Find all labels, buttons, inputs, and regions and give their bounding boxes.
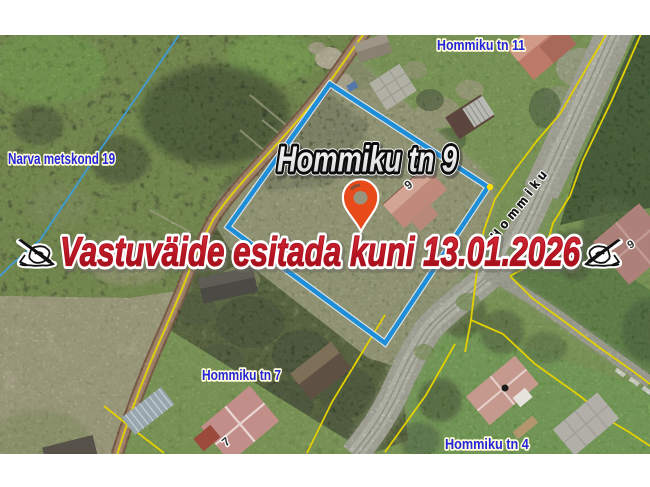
svg-text:Hommiku tn 7: Hommiku tn 7: [202, 367, 281, 383]
svg-text:Hommiku tn 11: Hommiku tn 11: [437, 37, 526, 53]
svg-text:Hommiku tn 9: Hommiku tn 9: [277, 139, 457, 180]
svg-text:Hommiku tn 4: Hommiku tn 4: [445, 436, 529, 452]
svg-text:Vastuväide esitada kuni 13.01.: Vastuväide esitada kuni 13.01.2026: [60, 228, 581, 274]
svg-text:Narva metskond 19: Narva metskond 19: [8, 149, 115, 167]
